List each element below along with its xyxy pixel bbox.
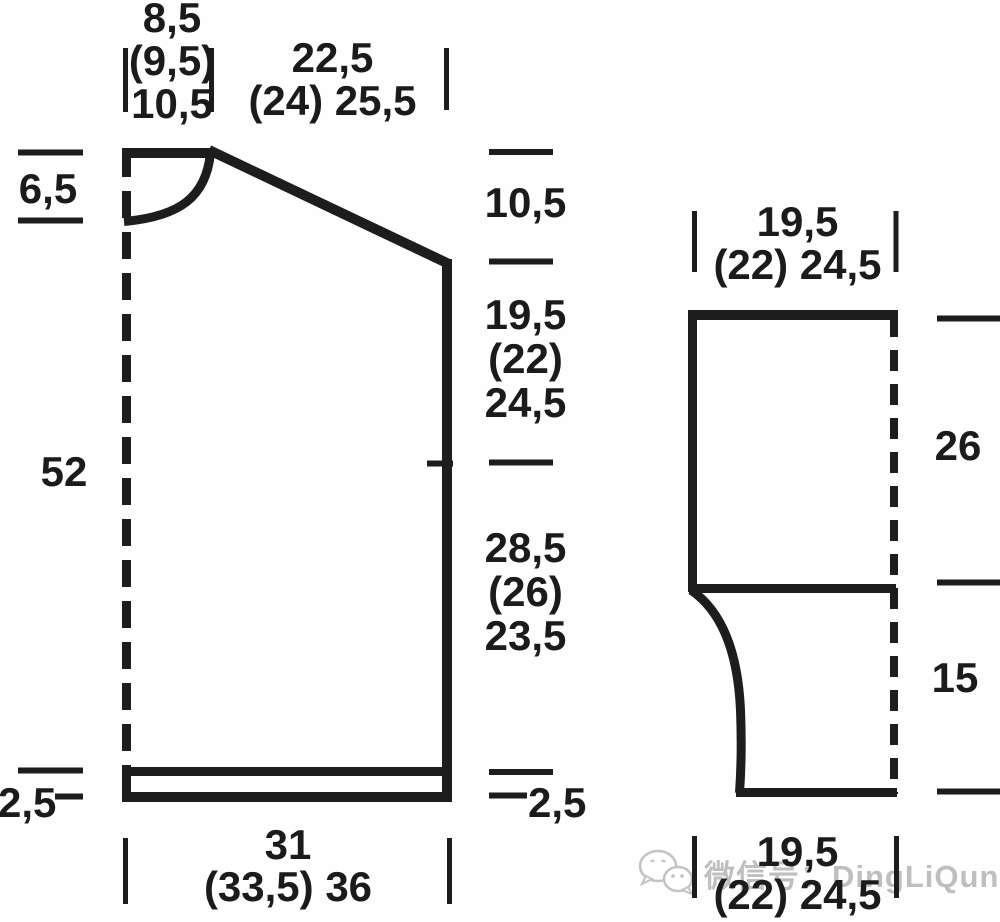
sleeve-upper-length-label: 26: [922, 424, 994, 467]
body-neck-depth-value: 6,5: [8, 167, 88, 210]
body-armhole-depth-size2: (22): [478, 337, 573, 381]
body-shoulder-width-label: 22,5 (24) 25,5: [225, 36, 440, 122]
sleeve-piece-outline: [688, 311, 898, 794]
sleeve-top-width-size1: 19,5: [695, 200, 900, 243]
body-shoulder-slant: [209, 150, 449, 264]
sleeve-bottom-width-size1: 19,5: [695, 830, 900, 873]
body-armhole-depth-size3: 24,5: [478, 381, 573, 425]
body-rib-right-label: 2,5: [528, 781, 598, 824]
body-shoulder-width-sizes23: (24) 25,5: [225, 79, 440, 122]
body-rib-left-value: 2,5: [0, 781, 56, 824]
body-bottom-width-sizes23: (33,5) 36: [178, 866, 398, 908]
body-shoulder-drop-label: 10,5: [478, 181, 573, 224]
sleeve-lower-length-label: 15: [922, 656, 988, 699]
body-armhole-depth-label: 19,5 (22) 24,5: [478, 293, 573, 425]
body-neck-depth-label: 6,5: [8, 167, 88, 210]
body-neck-curve: [124, 153, 211, 222]
sleeve-underarm-curve: [691, 590, 741, 793]
body-bottom-width-label: 31 (33,5) 36: [178, 824, 398, 908]
sleeve-upper-length-value: 26: [922, 424, 994, 467]
pattern-schematic: 8,5 (9,5) 10,5 22,5 (24) 25,5 6,5 52 2,5…: [0, 0, 1000, 922]
body-total-length-value: 52: [28, 450, 100, 493]
body-bottom-width-size1: 31: [178, 824, 398, 866]
body-rib-right-value: 2,5: [528, 781, 598, 824]
sleeve-lower-length-value: 15: [922, 656, 988, 699]
body-shoulder-width-size1: 22,5: [225, 36, 440, 79]
body-side-length-size1: 28,5: [478, 526, 573, 570]
body-armhole-depth-size1: 19,5: [478, 293, 573, 337]
body-neck-width-size2: (9,5): [102, 39, 242, 82]
sleeve-bottom-width-label: 19,5 (22) 24,5: [695, 830, 900, 916]
body-side-length-label: 28,5 (26) 23,5: [478, 526, 573, 658]
body-piece-outline: [122, 150, 453, 799]
body-neck-width-size1: 8,5: [102, 0, 242, 39]
schematic-line-art: [0, 0, 1000, 922]
sleeve-bottom-width-sizes23: (22) 24,5: [695, 873, 900, 916]
body-neck-width-label: 8,5 (9,5) 10,5: [102, 0, 242, 125]
body-side-length-size2: (26): [478, 570, 573, 614]
body-shoulder-drop-value: 10,5: [478, 181, 573, 224]
body-neck-width-size3: 10,5: [102, 82, 242, 125]
body-rib-left-label: 2,5: [0, 781, 56, 824]
body-side-length-size3: 23,5: [478, 614, 573, 658]
sleeve-top-width-sizes23: (22) 24,5: [695, 243, 900, 286]
body-total-length-label: 52: [28, 450, 100, 493]
sleeve-top-width-label: 19,5 (22) 24,5: [695, 200, 900, 286]
